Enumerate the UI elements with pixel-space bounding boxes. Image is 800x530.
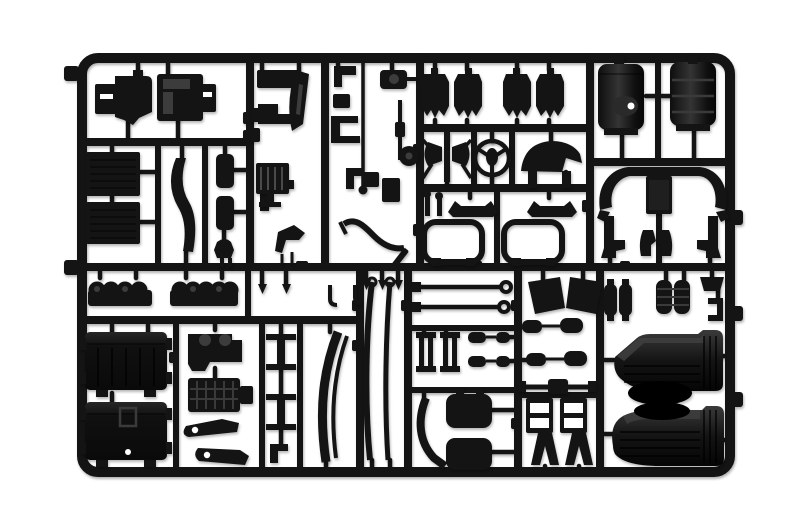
fuel-tank-capped-part: [598, 56, 644, 135]
bumper-plate-part: [646, 176, 672, 214]
storage-box-a-part: [80, 332, 172, 397]
fuel-tank-ribbed-part: [670, 56, 716, 131]
sprue-photo: [0, 0, 800, 530]
sprue-illustration: [0, 0, 800, 530]
hatch-panel-parts: [214, 154, 234, 267]
storage-box-b-part: [80, 402, 172, 467]
